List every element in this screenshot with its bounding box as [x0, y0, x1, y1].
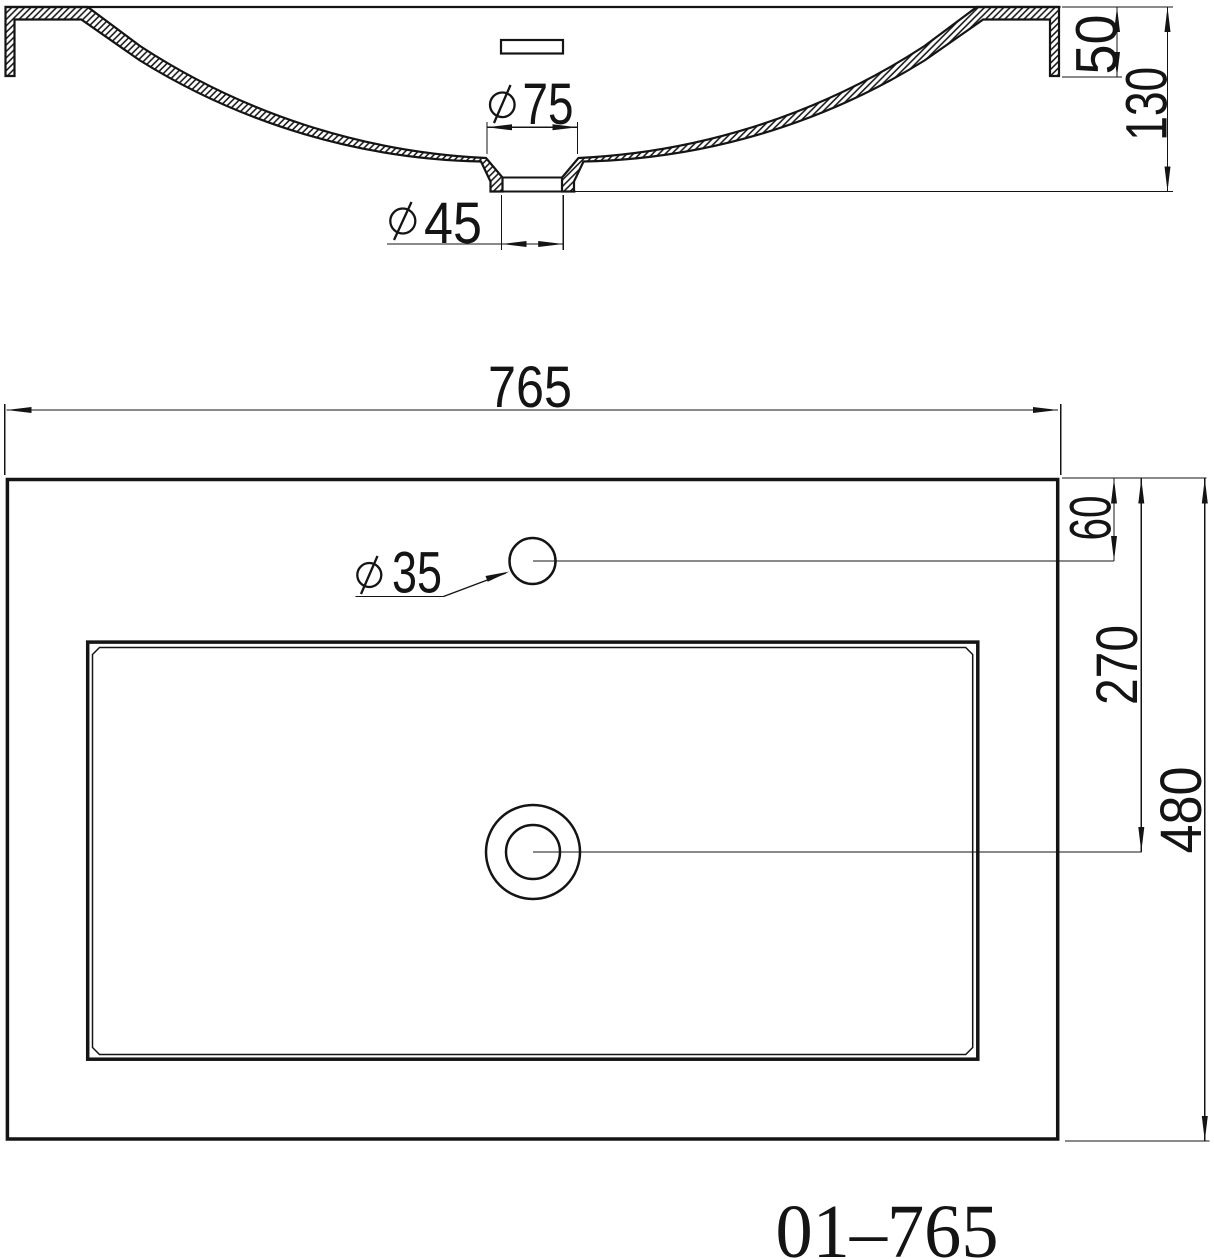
- svg-text:35: 35: [392, 541, 442, 606]
- svg-text:60: 60: [1059, 496, 1124, 541]
- svg-text:50: 50: [1065, 15, 1130, 75]
- svg-text:480: 480: [1149, 767, 1214, 854]
- svg-text:765: 765: [488, 355, 572, 420]
- svg-text:75: 75: [523, 72, 574, 137]
- svg-text:130: 130: [1115, 67, 1180, 141]
- svg-text:01–765: 01–765: [776, 1190, 999, 1259]
- svg-text:45: 45: [424, 191, 482, 256]
- svg-text:270: 270: [1085, 625, 1150, 705]
